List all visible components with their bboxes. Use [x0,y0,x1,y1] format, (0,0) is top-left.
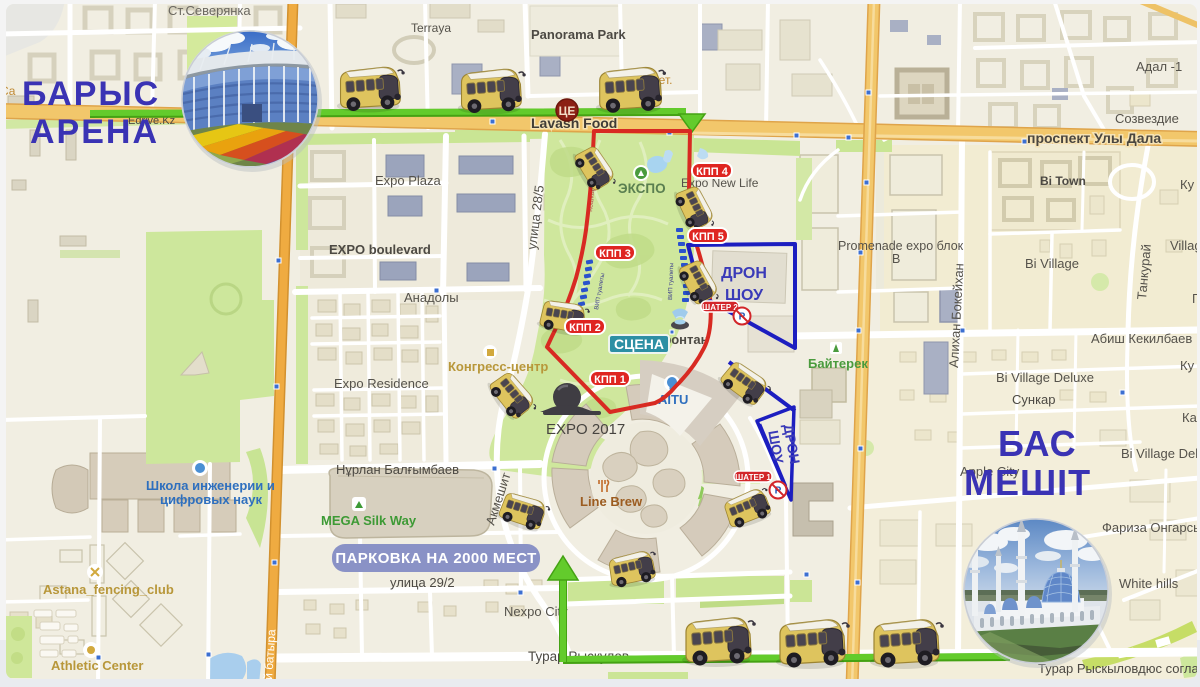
svg-text:Созвездие: Созвездие [1115,111,1179,126]
svg-text:ЦЕ: ЦЕ [559,104,576,118]
svg-text:EXPO 2017: EXPO 2017 [546,421,625,438]
svg-text:ШОУ: ШОУ [725,287,764,304]
svg-text:ШАТЕР 2: ШАТЕР 2 [702,303,738,312]
svg-text:Сункар: Сункар [1012,392,1056,407]
svg-text:Анадолы: Анадолы [404,290,459,305]
svg-text:АРЕНА: АРЕНА [30,113,159,151]
svg-text:ПАРКОВКА НА 2000 МЕСТ: ПАРКОВКА НА 2000 МЕСТ [335,550,536,567]
svg-text:улица 29/2: улица 29/2 [390,575,455,590]
svg-text:Нұрлан Балғымбаев: Нұрлан Балғымбаев [336,462,459,477]
svg-text:В: В [892,252,900,266]
svg-text:Байтерек: Байтерек [808,356,868,371]
svg-text:Terraya: Terraya [411,21,451,35]
svg-text:БАС: БАС [998,423,1077,464]
svg-text:Expo Plaza: Expo Plaza [375,173,442,188]
svg-text:КПП 1: КПП 1 [594,374,626,386]
svg-text:КПП 5: КПП 5 [692,231,724,243]
svg-text:Ст.Северянка: Ст.Северянка [168,3,251,18]
svg-text:Nexpo City: Nexpo City [504,604,568,619]
svg-text:БАРЫС: БАРЫС [22,75,160,113]
svg-text:Astana_fencing_club: Astana_fencing_club [43,582,174,597]
svg-text:Line Brew: Line Brew [580,494,643,509]
svg-text:Bi Village Deluxe: Bi Village Deluxe [996,370,1094,385]
svg-text:Абиш Кекилбаев: Абиш Кекилбаев [1091,331,1192,346]
svg-text:ЭКСПО: ЭКСПО [618,181,666,196]
svg-text:Bi Village: Bi Village [1025,256,1079,271]
svg-text:ШАТЕР 1: ШАТЕР 1 [735,473,771,482]
svg-text:Конгресс-центр: Конгресс-центр [448,359,548,374]
svg-text:Villag: Villag [1170,238,1200,253]
svg-text:Athletic Center: Athletic Center [51,658,143,673]
svg-text:МЕШІТ: МЕШІТ [964,462,1091,503]
svg-text:КПП 4: КПП 4 [696,166,729,178]
svg-text:Ку: Ку [1180,177,1195,192]
svg-text:MEGA Silk Way: MEGA Silk Way [321,513,417,528]
svg-text:Bi Town: Bi Town [1040,174,1086,188]
svg-text:СЦЕНА: СЦЕНА [614,336,664,352]
svg-text:White hills: White hills [1119,576,1179,591]
svg-text:цифровых наук: цифровых наук [160,492,262,507]
svg-text:КПП 3: КПП 3 [599,248,631,260]
svg-text:Ка: Ка [1182,410,1198,425]
svg-text:ДРОН: ДРОН [721,265,767,282]
svg-text:Panorama Park: Panorama Park [531,27,626,42]
svg-text:Bi Village Del: Bi Village Del [1121,446,1198,461]
svg-text:Фариза Онгарсы: Фариза Онгарсы [1102,520,1200,535]
svg-text:Promenade expo блок: Promenade expo блок [838,239,964,253]
svg-text:КПП 2: КПП 2 [569,322,601,334]
svg-text:Школа инженерии и: Школа инженерии и [146,478,275,493]
svg-text:Ку: Ку [1180,358,1195,373]
svg-text:проспект Улы Дала: проспект Улы Дала [1027,130,1161,146]
svg-text:Expo Residence: Expo Residence [334,376,429,391]
svg-text:Адал -1: Адал -1 [1136,59,1182,74]
svg-text:EXPO boulevard: EXPO boulevard [329,242,431,257]
